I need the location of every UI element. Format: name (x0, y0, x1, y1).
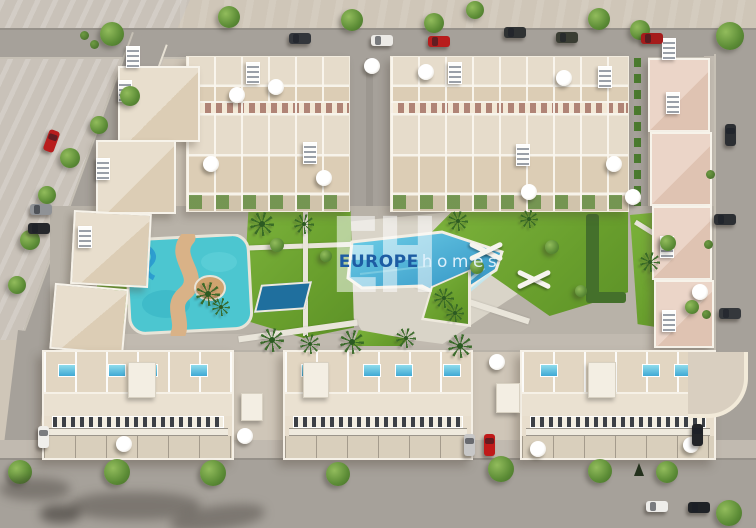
skylight-icon (303, 142, 317, 164)
car-icon (289, 33, 311, 44)
skylight-icon (78, 226, 92, 248)
umbrella-icon (692, 284, 708, 300)
umbrella-icon (364, 58, 380, 74)
tree-icon (470, 260, 484, 274)
car-icon (30, 204, 52, 215)
car-icon (719, 308, 741, 319)
tree-icon (685, 300, 699, 314)
palm-icon (260, 328, 284, 352)
gym-equipment-icon (516, 268, 552, 290)
villa (49, 283, 128, 355)
tree-icon (120, 86, 140, 106)
storage-structure (496, 383, 520, 413)
skylight-icon (126, 46, 140, 68)
umbrella-icon (418, 64, 434, 80)
tree-icon (104, 459, 130, 485)
skylight-icon (666, 92, 680, 114)
umbrella-icon (530, 441, 546, 457)
tree-icon (60, 148, 80, 168)
cypress-icon (634, 463, 644, 476)
umbrella-icon (556, 70, 572, 86)
shadow-blob (40, 505, 80, 523)
palm-icon (446, 304, 464, 322)
umbrella-icon (237, 428, 253, 444)
tree-icon (575, 285, 587, 297)
car-icon (484, 434, 495, 456)
umbrella-icon (606, 156, 622, 172)
gym-equipment-icon (468, 240, 504, 262)
hedge-l-foot (586, 292, 626, 303)
tree-icon (90, 116, 108, 134)
tree-icon (466, 1, 484, 19)
skylight-icon (246, 62, 260, 84)
umbrella-icon (316, 170, 332, 186)
tree-icon (716, 500, 742, 526)
palm-icon (448, 334, 472, 358)
umbrella-icon (229, 87, 245, 103)
bush-icon (80, 31, 89, 40)
palm-icon (340, 330, 364, 354)
palm-icon (448, 211, 468, 231)
palm-icon (640, 252, 660, 272)
tree-icon (200, 460, 226, 486)
palm-icon (300, 334, 320, 354)
villa (650, 132, 712, 206)
car-icon (725, 124, 736, 146)
car-icon (371, 35, 393, 46)
tree-icon (660, 235, 676, 251)
palm-icon (396, 328, 416, 348)
car-icon (646, 501, 668, 512)
apartment-block-bottom-left (42, 350, 234, 460)
car-icon (641, 33, 663, 44)
apartment-block-bottom-center (283, 350, 473, 460)
car-icon (428, 36, 450, 47)
tree-icon (588, 459, 612, 483)
umbrella-icon (521, 184, 537, 200)
car-icon (556, 32, 578, 43)
tree-icon (424, 13, 444, 33)
tree-icon (320, 250, 332, 262)
villa (70, 210, 152, 288)
hedge-row-alley (634, 58, 641, 206)
alley-center-gutter (366, 58, 373, 206)
kids-pool (254, 281, 312, 312)
tree-icon (716, 22, 744, 50)
palm-icon (250, 212, 274, 236)
tree-icon (656, 461, 678, 483)
tree-icon (218, 6, 240, 28)
storage-structure (241, 393, 263, 421)
palm-icon (520, 210, 538, 228)
palm-icon (212, 298, 230, 316)
tree-icon (8, 276, 26, 294)
tree-icon (100, 22, 124, 46)
main-pool (330, 216, 520, 346)
bush-icon (706, 170, 715, 179)
car-icon (504, 27, 526, 38)
umbrella-icon (625, 189, 641, 205)
palm-icon (294, 214, 314, 234)
car-icon (38, 426, 49, 448)
townhouse-block-top-left (186, 56, 350, 212)
umbrella-icon (116, 436, 132, 452)
car-icon (464, 434, 475, 456)
hedge-l-shape (586, 214, 599, 300)
car-icon (714, 214, 736, 225)
car-icon (692, 424, 703, 446)
umbrella-icon (489, 354, 505, 370)
skylight-icon (598, 66, 612, 88)
bush-icon (704, 240, 713, 249)
tree-icon (488, 456, 514, 482)
tree-icon (326, 462, 350, 486)
skylight-icon (662, 310, 676, 332)
umbrella-icon (268, 79, 284, 95)
tree-icon (588, 8, 610, 30)
shadow-blob (0, 478, 70, 500)
bush-icon (702, 310, 711, 319)
aerial-development-render: EH EUROPEhomes (0, 0, 756, 528)
umbrella-icon (203, 156, 219, 172)
skylight-icon (96, 158, 110, 180)
skylight-icon (448, 62, 462, 84)
skylight-icon (662, 38, 676, 60)
bush-icon (90, 40, 99, 49)
car-icon (688, 502, 710, 513)
skylight-icon (516, 144, 530, 166)
tree-icon (38, 186, 56, 204)
tree-icon (341, 9, 363, 31)
tree-icon (270, 238, 284, 252)
car-icon (28, 223, 50, 234)
tree-icon (545, 240, 559, 254)
